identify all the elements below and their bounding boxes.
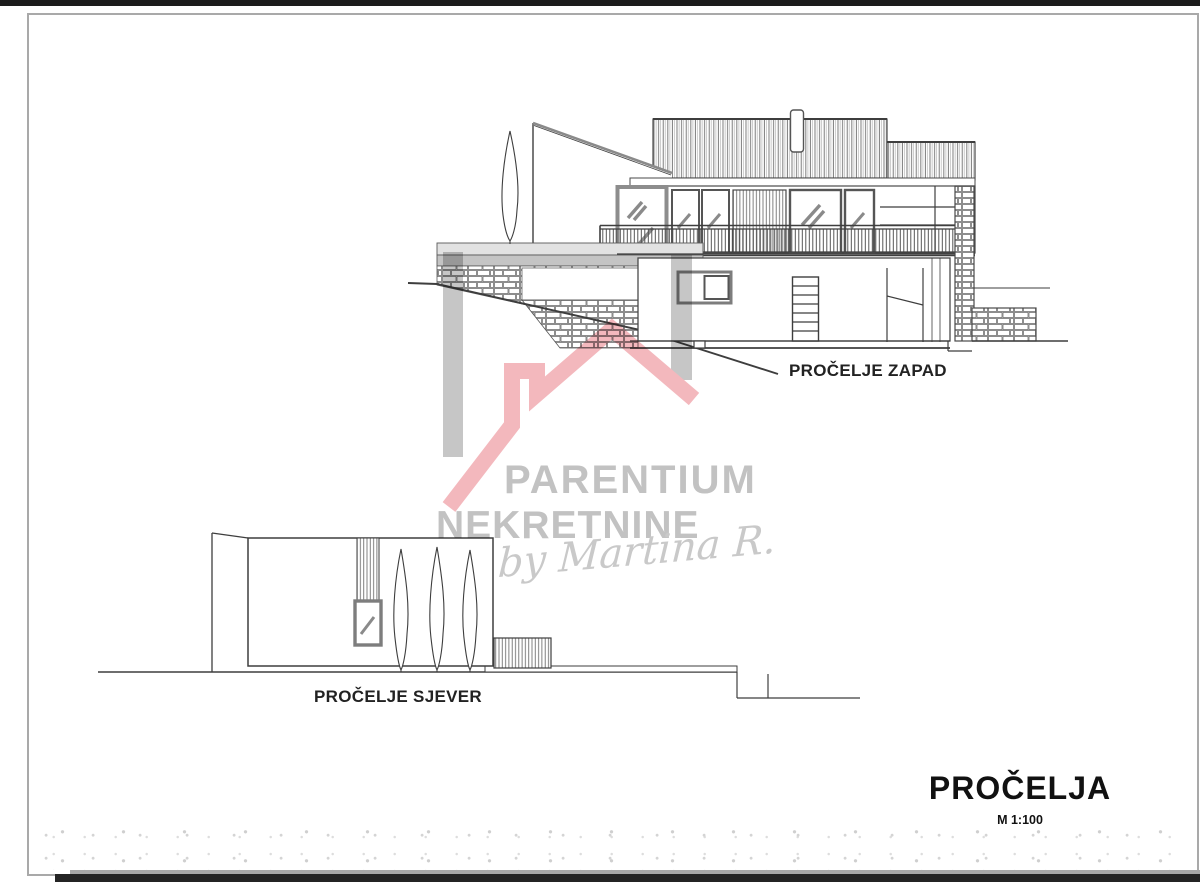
scan-edge-bottom [55,874,1200,882]
chimney [791,110,804,152]
elevation-label-north: PROČELJE SJEVER [314,687,482,707]
title-block: PROČELJA M 1:100 [925,770,1115,827]
elevations-drawing [0,0,1200,882]
west-lower-floor [630,258,950,348]
north-house-volume [212,533,493,672]
west-secondary-roof [887,142,975,180]
stone-pillar [955,186,974,341]
scan-noise [32,826,1172,870]
north-elevation-drawing [98,533,860,698]
window [678,272,731,303]
west-main-roof [653,119,887,178]
sheet-scale: M 1:100 [925,813,1115,827]
slat-panel [357,538,379,601]
west-elevation-drawing [408,110,1068,374]
window [355,601,381,645]
sheet-title: PROČELJA [925,770,1115,807]
drawing-sheet: PARENTIUM NEKRETNINE by Martina R. PROČE… [0,0,1200,882]
elevation-label-west: PROČELJE ZAPAD [789,361,947,381]
louvered-door [793,277,819,341]
cypress-tree [502,131,518,244]
slatted-fence [494,638,551,668]
